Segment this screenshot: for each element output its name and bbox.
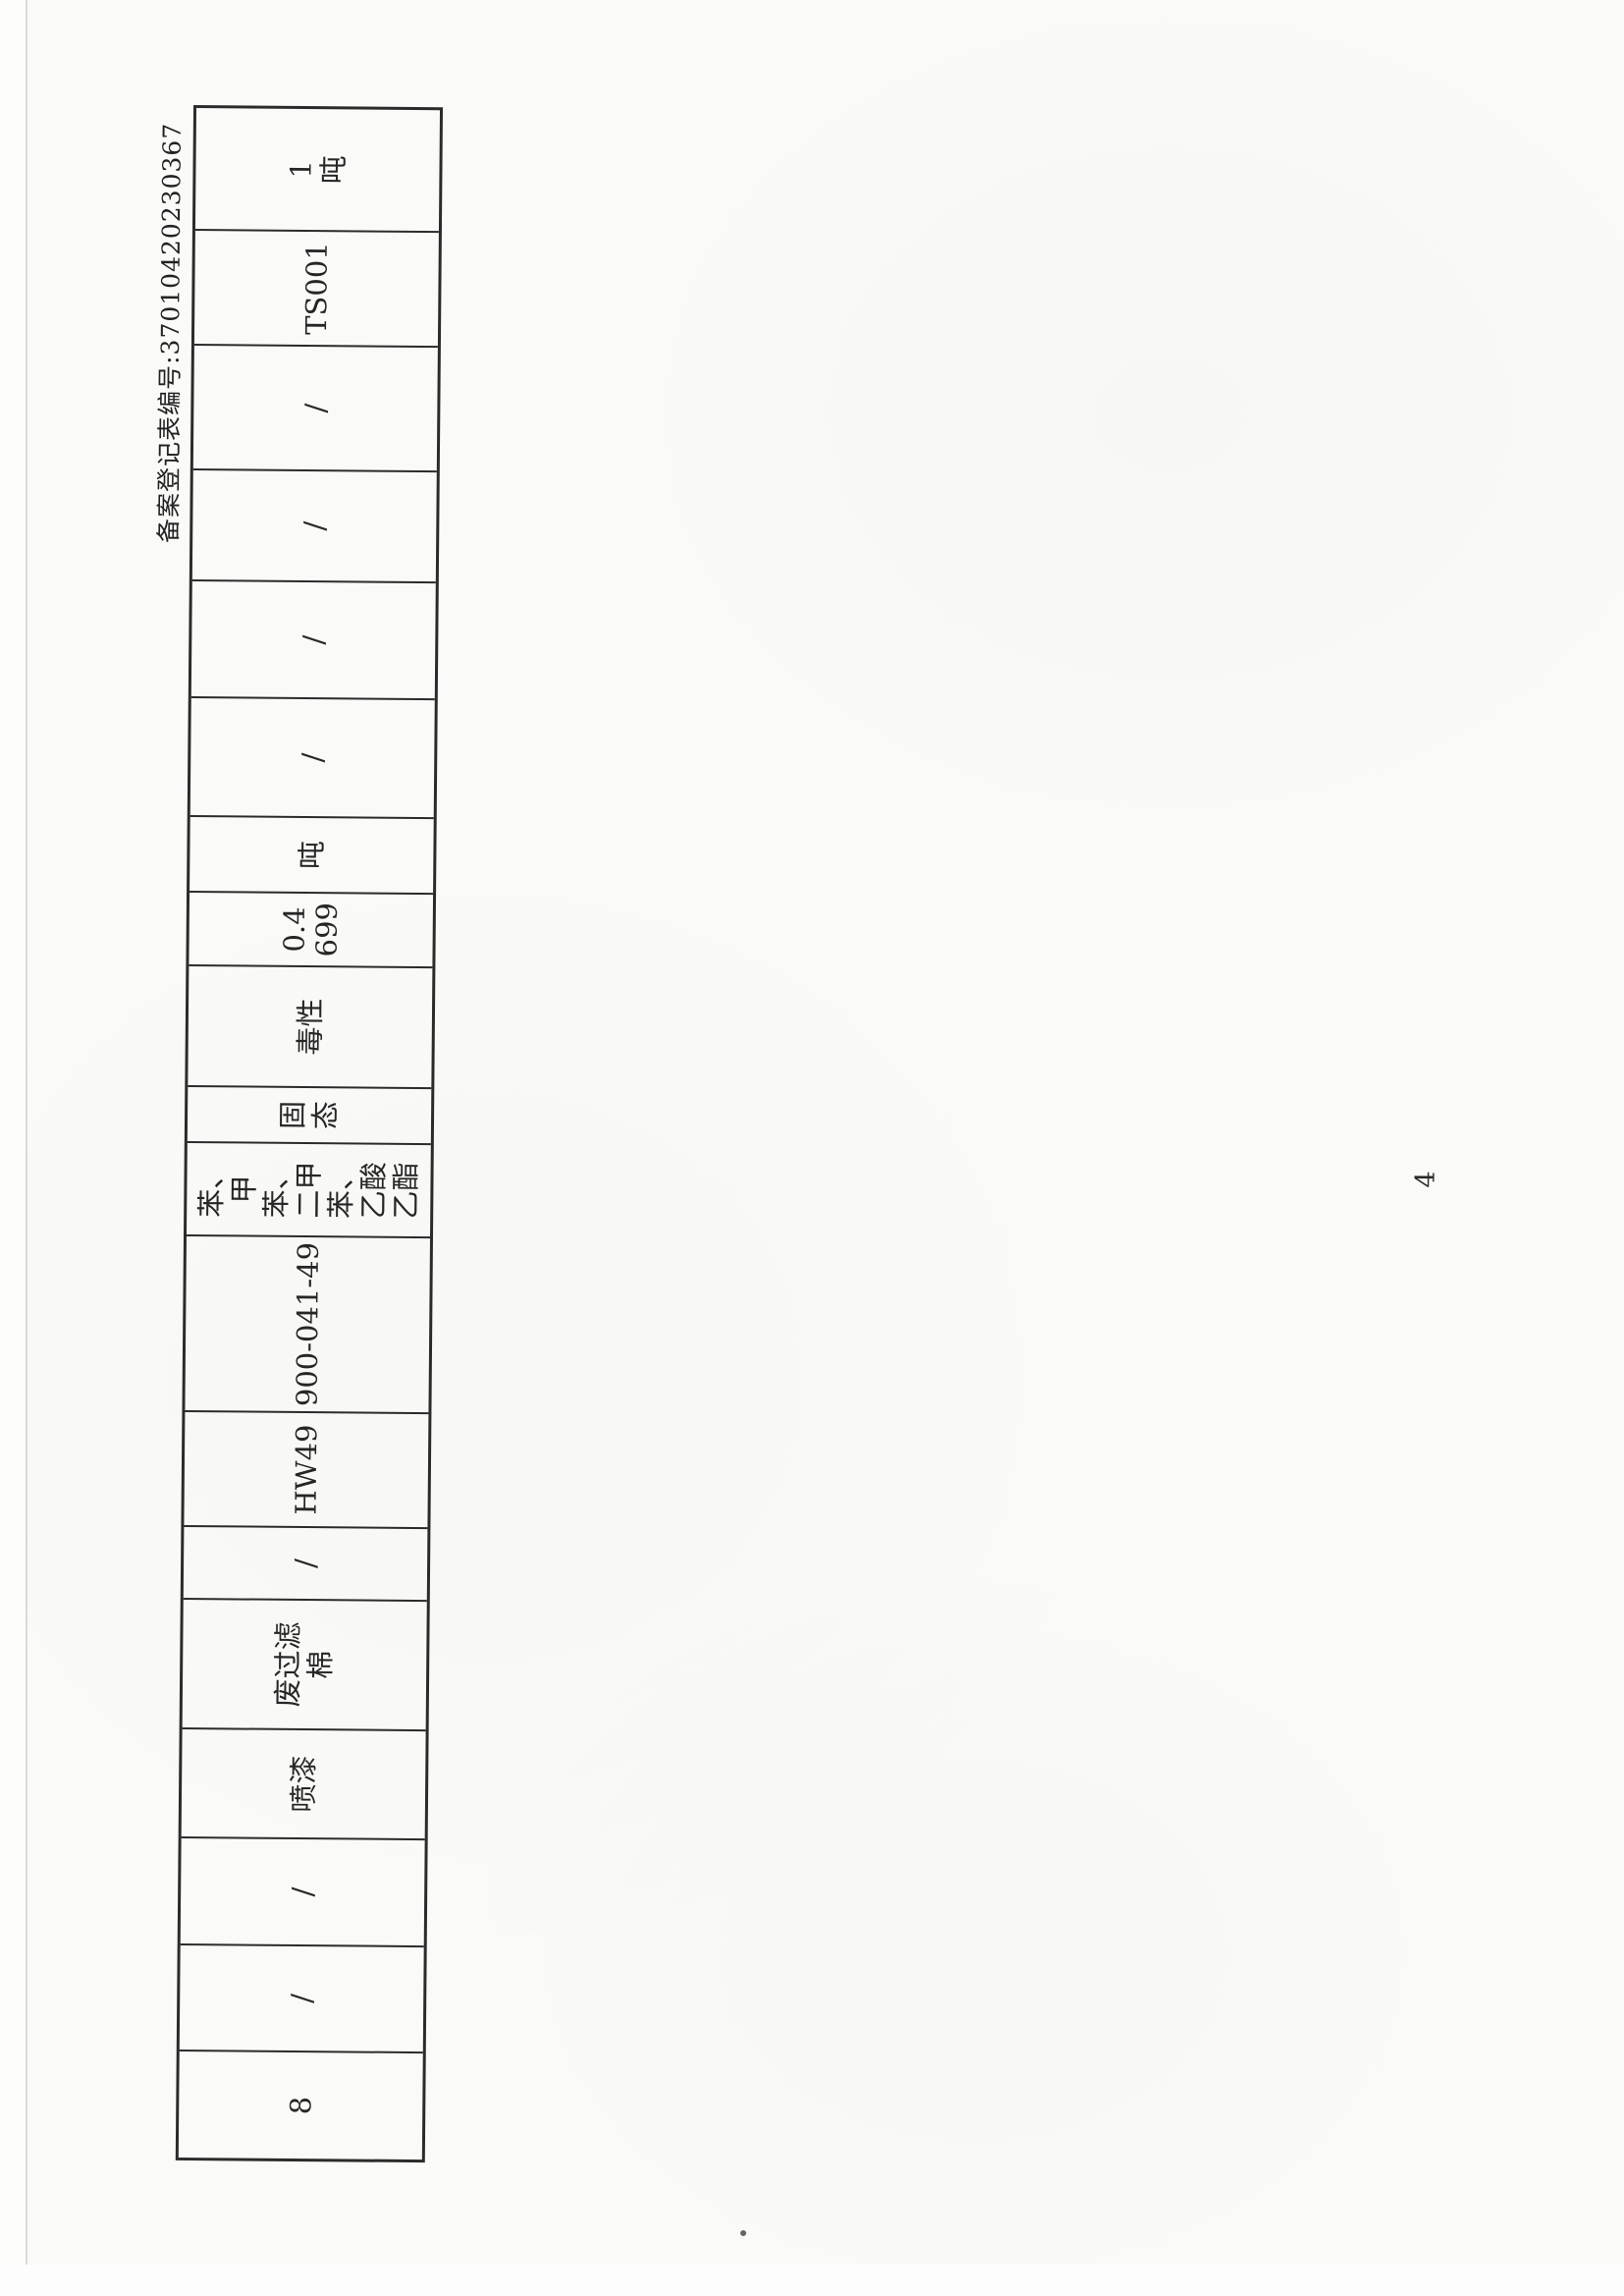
table-cell-waste-name: 废过滤 棉 xyxy=(183,1598,427,1729)
table-cell: / xyxy=(181,1836,425,1945)
skewed-scan-layer: 备案登记表编号:37010420230367 8 / / 喷漆 废过滤 棉 / … xyxy=(0,0,1624,2296)
table-cell-quantity: 0.4 699 xyxy=(189,891,433,966)
scanned-page: 备案登记表编号:37010420230367 8 / / 喷漆 废过滤 棉 / … xyxy=(0,0,1624,2296)
waste-record-table: 8 / / 喷漆 废过滤 棉 / HW49 900-041-49 苯、 甲 苯、… xyxy=(176,105,443,2162)
table-cell: / xyxy=(184,1525,428,1600)
page-number: 4 xyxy=(1410,1160,1440,1199)
table-cell-code-ts: TS001 xyxy=(194,229,439,346)
table-cell-hazard: 毒性 xyxy=(188,964,432,1087)
table-cell-waste-code: 900-041-49 xyxy=(185,1234,430,1412)
table-cell-components: 苯、 甲 苯、 二甲 苯、 乙酸 乙酯 xyxy=(187,1141,431,1236)
rotated-content: 备案登记表编号:37010420230367 8 / / 喷漆 废过滤 棉 / … xyxy=(0,0,1624,2296)
table-cell-sequence: 8 xyxy=(179,2050,423,2159)
table-cell-unit: 吨 xyxy=(189,815,434,893)
table-cell: / xyxy=(193,344,438,470)
table-cell-waste-class: HW49 xyxy=(184,1410,428,1527)
table-cell-amount-unit: 1 吨 xyxy=(195,108,440,231)
table-cell: / xyxy=(180,1943,424,2051)
table-cell: / xyxy=(191,579,436,698)
table-cell: / xyxy=(192,468,437,581)
table-cell-process: 喷漆 xyxy=(182,1727,426,1838)
table-cell: / xyxy=(190,696,435,817)
table-cell-state: 固 态 xyxy=(188,1085,431,1143)
form-number: 备案登记表编号:37010420230367 xyxy=(149,123,189,543)
